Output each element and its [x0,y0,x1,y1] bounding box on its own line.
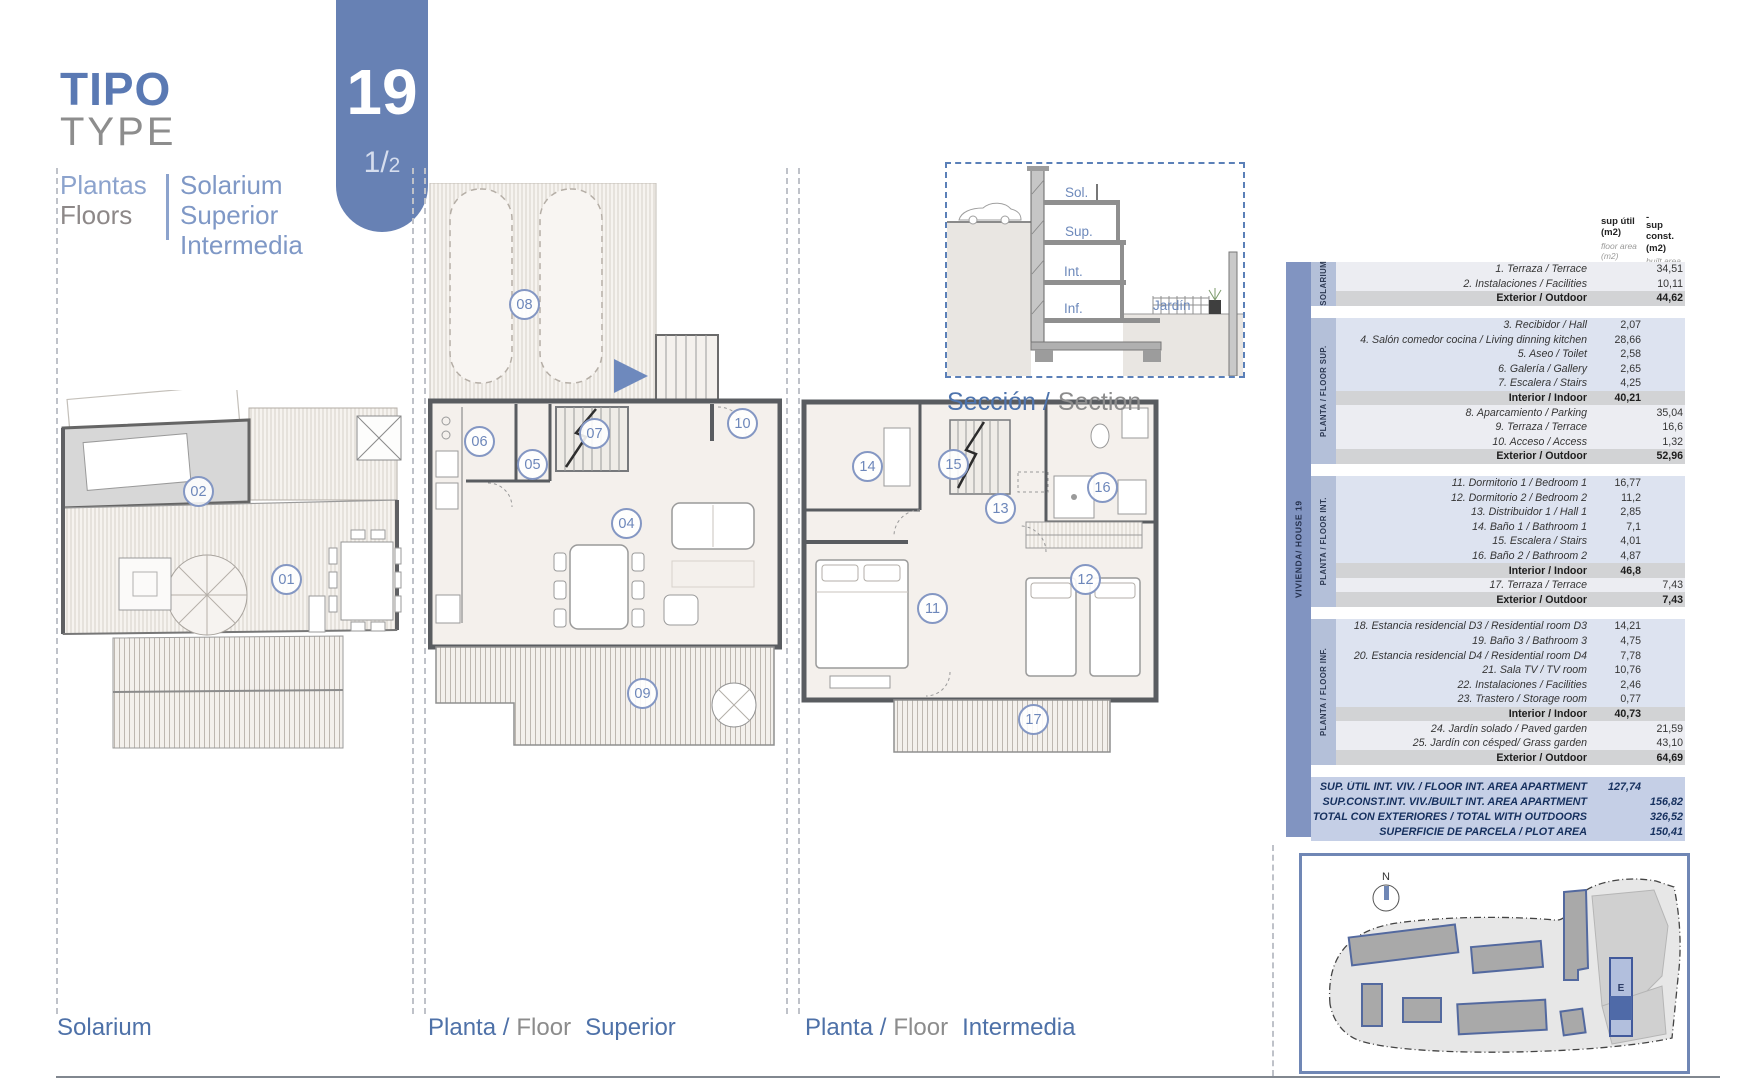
bathtub [1118,480,1146,514]
floors-label-es: Plantas [60,170,147,200]
table-row: 22. Instalaciones / Facilities2,46 [1336,677,1685,692]
row-label: 13. Distribuidor 1 / Hall 1 [1336,506,1597,518]
table-row: 15. Escalera / Stairs4,01 [1336,534,1685,549]
row-label: 23. Trastero / Storage room [1336,693,1597,705]
caption-solarium-text: Solarium [57,1014,152,1041]
table-floor-group: PLANTA / FLOOR INT.11. Dormitorio 1 / Be… [1311,476,1685,607]
floor-band: PLANTA / FLOOR INF. [1311,619,1336,765]
table-total-row: Interior / Indoor40,21 [1336,391,1685,406]
row-floor-area: 2,65 [1597,363,1641,375]
caption-part-es: Planta / [428,1014,509,1041]
row-built-area: 21,59 [1641,723,1685,735]
label-jardin: Jardín [1153,298,1191,313]
toilet [1091,424,1109,448]
outdoor-table [341,542,393,620]
table-row: 11. Dormitorio 1 / Bedroom 116,77 [1336,476,1685,491]
room-number: 17 [1018,704,1049,735]
row-floor-area: 2,46 [1597,679,1641,691]
row-label: Exterior / Outdoor [1336,450,1597,462]
row-floor-area: 46,8 [1597,565,1641,577]
row-floor-area: 0,77 [1597,693,1641,705]
type-number-badge: 19 1/2 [336,0,428,232]
room-number: 16 [1087,472,1118,503]
row-floor-area: 40,73 [1597,708,1641,720]
table-total-row: Interior / Indoor46,8 [1336,563,1685,578]
room-number: 04 [611,508,642,539]
bed-bench [830,676,890,688]
room-number: 15 [938,449,969,480]
row-built-area: 150,41 [1641,826,1685,838]
room-number: 10 [727,408,758,439]
row-floor-area: 4,87 [1597,550,1641,562]
row-label: Interior / Indoor [1336,565,1597,577]
label-sup: Sup. [1065,224,1093,239]
row-label: 6. Galería / Gallery [1336,363,1597,375]
type-number: 19 [346,60,417,124]
table-row: 2. Instalaciones / Facilities10,11 [1336,277,1685,292]
skylight-panel [83,434,191,491]
col-const-title: sup const. (m2) [1646,220,1688,254]
parking-spot [450,189,512,383]
superior-floor-plan [428,183,782,758]
row-floor-area: 7,78 [1597,650,1641,662]
row-floor-area: 4,25 [1597,377,1641,389]
floor-band-label: PLANTA / FLOOR INT. [1311,476,1336,607]
desk [884,428,910,486]
room-number: 08 [509,289,540,320]
room-number: 09 [627,678,658,709]
row-label: 15. Escalera / Stairs [1336,535,1597,547]
page-bottom-rule [56,1076,1720,1078]
table-row: 25. Jardín con césped/ Grass garden43,10 [1336,736,1685,751]
table-row: TOTAL CON EXTERIORES / TOTAL WITH OUTDOO… [1311,809,1685,824]
row-label: 21. Sala TV / TV room [1336,664,1597,676]
table-total-row: Exterior / Outdoor7,43 [1336,592,1685,607]
double-bed [816,560,908,668]
row-floor-area: 14,21 [1597,620,1641,632]
row-built-area: 44,62 [1641,292,1685,304]
row-built-area: 35,04 [1641,407,1685,419]
site-plan-drawing: N E [1302,856,1687,1071]
table-total-row: Exterior / Outdoor52,96 [1336,449,1685,464]
row-label: 18. Estancia residencial D3 / Residentia… [1336,620,1597,632]
fraction-sub: 2 [389,154,401,177]
row-label: 7. Escalera / Stairs [1336,377,1597,389]
parking-spot [540,189,602,383]
table-row: 6. Galería / Gallery2,65 [1336,362,1685,377]
row-floor-area: 7,1 [1597,521,1641,533]
caption-intermedia: Planta /FloorIntermedia [805,1014,1075,1042]
column-divider [424,168,426,1014]
single-bed [1026,578,1076,676]
subtitle-divider [166,174,169,240]
row-floor-area: 28,66 [1597,334,1641,346]
row-built-area: 156,82 [1641,796,1685,808]
row-floor-area: 10,76 [1597,664,1641,676]
table-total-row: Interior / Indoor40,73 [1336,707,1685,722]
row-floor-area: 4,75 [1597,635,1641,647]
room-number: 14 [852,451,883,482]
armchair [664,595,698,625]
row-label: 9. Terraza / Terrace [1336,421,1597,433]
row-label: 4. Salón comedor cocina / Living dinning… [1336,334,1597,346]
row-label: 19. Baño 3 / Bathroom 3 [1336,635,1597,647]
caption-part-en: Floor [893,1014,948,1041]
table-row: 3. Recibidor / Hall2,07 [1336,318,1685,333]
col-util-title: sup útil (m2) [1601,216,1645,239]
plant [1209,288,1221,300]
floors-label-en: Floors [60,200,147,230]
brochure-page: TIPO TYPE 19 1/2 Plantas Floors Solarium… [0,0,1746,1080]
row-floor-area: 2,85 [1597,506,1641,518]
floor-band: SOLARIUM [1311,262,1336,306]
caption-part-es: Planta / [805,1014,886,1041]
highlighted-building: E [1610,958,1632,1036]
floor-band: PLANTA / FLOOR INT. [1311,476,1336,607]
room-number: 12 [1070,564,1101,595]
room-number: 13 [985,493,1016,524]
section-caption-es: Sección / [947,388,1050,416]
area-table: SOLARIUM1. Terraza / Terrace34,512. Inst… [1311,262,1685,841]
row-floor-area: 4,01 [1597,535,1641,547]
floor-band-label: PLANTA / FLOOR INF. [1311,619,1336,765]
floor-band-label: PLANTA / FLOOR SUP. [1311,318,1336,464]
row-built-area: 52,96 [1641,450,1685,462]
row-label: Exterior / Outdoor [1336,594,1597,606]
row-built-area: 64,69 [1641,752,1685,764]
table-row: 17. Terraza / Terrace7,43 [1336,578,1685,593]
dining-table [570,545,628,629]
label-sol: Sol. [1065,185,1088,200]
label-inf: Inf. [1064,301,1083,316]
table-row: 23. Trastero / Storage room0,77 [1336,692,1685,707]
table-floor-group: PLANTA / FLOOR INF.18. Estancia residenc… [1311,619,1685,765]
row-label: 22. Instalaciones / Facilities [1336,679,1597,691]
terrace-deck [894,700,1110,752]
col-util-subtitle: floor area (m2) [1601,241,1645,261]
room-number: 05 [517,449,548,480]
row-label: 8. Aparcamiento / Parking [1336,407,1597,419]
table-row: 18. Estancia residencial D3 / Residentia… [1336,619,1685,634]
row-floor-area: 16,77 [1597,477,1641,489]
caption-floor-name: Intermedia [962,1014,1075,1041]
table-floor-group: SOLARIUM1. Terraza / Terrace34,512. Inst… [1311,262,1685,306]
row-label: Interior / Indoor [1336,392,1597,404]
table-row: 24. Jardín solado / Paved garden21,59 [1336,721,1685,736]
row-built-area: 7,43 [1641,579,1685,591]
room-number: 07 [579,418,610,449]
table-total-row: Exterior / Outdoor44,62 [1336,291,1685,306]
floor-band: PLANTA / FLOOR SUP. [1311,318,1336,464]
boundary-wall [1229,252,1237,376]
section-diagram-box: Sol. Sup. Int. Inf. Jardín [945,162,1245,378]
table-row: 20. Estancia residencial D4 / Residentia… [1336,648,1685,663]
car-icon [959,203,1021,224]
row-label: Interior / Indoor [1336,708,1597,720]
row-built-area: 326,52 [1641,811,1685,823]
intermedia-floor-plan [800,392,1162,760]
foundation [1031,342,1161,350]
table-row: 14. Baño 1 / Bathroom 17,1 [1336,520,1685,535]
row-floor-area: 127,74 [1597,781,1641,793]
room-number: 06 [464,426,495,457]
column-divider [1272,845,1274,1076]
page-fraction: 1/2 [364,146,401,180]
section-caption: Sección /Section [947,388,1141,417]
table-row: 21. Sala TV / TV room10,76 [1336,663,1685,678]
row-label: 25. Jardín con césped/ Grass garden [1336,737,1597,749]
row-label: 16. Baño 2 / Bathroom 2 [1336,550,1597,562]
table-row: 13. Distribuidor 1 / Hall 12,85 [1336,505,1685,520]
table-row: 5. Aseo / Toilet2,58 [1336,347,1685,362]
caption-superior: Planta /FloorSuperior [428,1014,676,1042]
row-label: 5. Aseo / Toilet [1336,348,1597,360]
house-side-band: VIVIENDA/ HOUSE 19 [1286,262,1311,837]
ground-left [947,222,1031,376]
row-floor-area: 11,2 [1597,492,1641,504]
page-title-es: TIPO [60,62,171,116]
section-caption-en: Section [1058,388,1141,416]
row-floor-area: 2,07 [1597,319,1641,331]
row-label: 20. Estancia residencial D4 / Residentia… [1336,650,1597,662]
room-number: 02 [183,476,214,507]
single-bed [1090,578,1140,676]
row-label: SUP.CONST.INT. VIV./BUILT INT. AREA APAR… [1311,796,1597,808]
table-summary: SUP. ÚTIL INT. VIV. / FLOOR INT. AREA AP… [1311,777,1685,841]
highlighted-building-label: E [1618,983,1625,994]
table-row: 7. Escalera / Stairs4,25 [1336,376,1685,391]
table-row: 12. Dormitorio 2 / Bedroom 211,2 [1336,490,1685,505]
row-built-area: 7,43 [1641,594,1685,606]
row-built-area: 16,6 [1641,421,1685,433]
table-row: 1. Terraza / Terrace34,51 [1336,262,1685,277]
row-label: 12. Dormitorio 2 / Bedroom 2 [1336,492,1597,504]
table-row: 4. Salón comedor cocina / Living dinning… [1336,332,1685,347]
row-built-area: 1,32 [1641,436,1685,448]
row-floor-area: 40,21 [1597,392,1641,404]
row-label: 17. Terraza / Terrace [1336,579,1597,591]
lounger [309,596,325,632]
row-label: 11. Dormitorio 1 / Bedroom 1 [1336,477,1597,489]
table-row: 10. Acceso / Access1,32 [1336,435,1685,450]
floors-label: Plantas Floors [60,170,147,230]
column-divider [786,168,788,1014]
row-label: 14. Baño 1 / Bathroom 1 [1336,521,1597,533]
page-title-en: TYPE [60,110,176,155]
row-built-area: 34,51 [1641,263,1685,275]
stair-core [1031,170,1044,342]
row-label: SUP. ÚTIL INT. VIV. / FLOOR INT. AREA AP… [1311,781,1597,793]
planter [1209,300,1221,314]
table-total-row: Exterior / Outdoor64,69 [1336,750,1685,765]
table-row: SUP. ÚTIL INT. VIV. / FLOOR INT. AREA AP… [1311,779,1685,794]
room-number: 01 [271,564,302,595]
row-label: 10. Acceso / Access [1336,436,1597,448]
label-int: Int. [1064,264,1083,279]
table-row: SUPERFICIE DE PARCELA / PLOT AREA150,41 [1311,824,1685,839]
row-label: 3. Recibidor / Hall [1336,319,1597,331]
fraction-main: 1/ [364,146,389,179]
row-built-area: 10,11 [1641,278,1685,290]
caption-floor-name: Superior [585,1014,676,1041]
row-floor-area: 2,58 [1597,348,1641,360]
kitchen-sink [436,451,458,477]
fridge [436,595,460,623]
table-row: 16. Baño 2 / Bathroom 24,87 [1336,549,1685,564]
row-label: 2. Instalaciones / Facilities [1336,278,1597,290]
caption-solarium: Solarium [57,1014,152,1042]
row-label: Exterior / Outdoor [1336,292,1597,304]
access-stairs [656,335,718,401]
row-label: Exterior / Outdoor [1336,752,1597,764]
table-row: 9. Terraza / Terrace16,6 [1336,420,1685,435]
row-label: 24. Jardín solado / Paved garden [1336,723,1597,735]
section-drawing: Sol. Sup. Int. Inf. Jardín [947,164,1243,376]
row-label: 1. Terraza / Terrace [1336,263,1597,275]
house-side-label: VIVIENDA/ HOUSE 19 [1286,262,1311,837]
table-floor-group: PLANTA / FLOOR SUP.3. Recibidor / Hall2,… [1311,318,1685,464]
table-row: 8. Aparcamiento / Parking35,04 [1336,405,1685,420]
table-row: SUP.CONST.INT. VIV./BUILT INT. AREA APAR… [1311,794,1685,809]
room-number: 11 [917,593,948,624]
column-header-floor-area: sup útil (m2) floor area (m2) [1601,216,1645,261]
floors-list: Solarium Superior Intermedia [180,170,303,260]
row-label: TOTAL CON EXTERIORES / TOTAL WITH OUTDOO… [1311,811,1597,823]
floor-slabs [1044,200,1160,323]
table-row: 19. Baño 3 / Bathroom 34,75 [1336,634,1685,649]
north-label: N [1382,871,1390,883]
caption-part-en: Floor [516,1014,571,1041]
planter [119,558,171,610]
solarium-floor-plan [57,390,402,760]
column-divider [412,168,414,1014]
row-label: SUPERFICIE DE PARCELA / PLOT AREA [1311,826,1597,838]
site-plan-box: N E [1299,853,1690,1074]
row-built-area: 43,10 [1641,737,1685,749]
floor-band-label: SOLARIUM [1311,262,1336,306]
